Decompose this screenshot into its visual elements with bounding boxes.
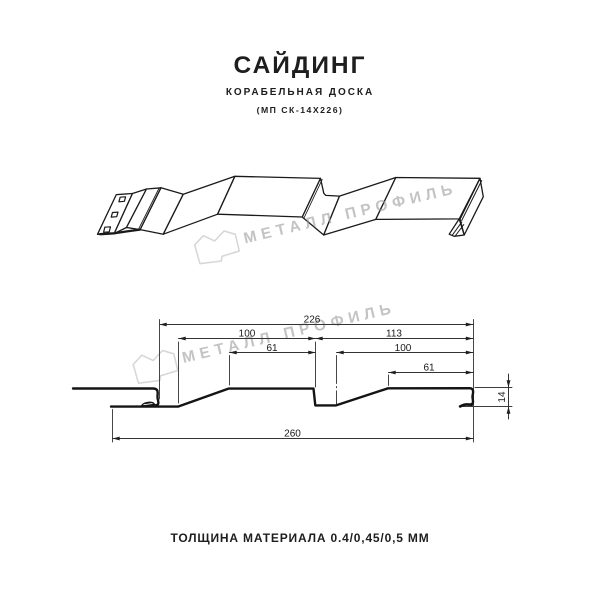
svg-text:113: 113 [386, 329, 402, 340]
svg-text:100: 100 [239, 329, 256, 340]
svg-text:260: 260 [284, 429, 301, 440]
svg-text:61: 61 [266, 343, 278, 354]
svg-text:100: 100 [395, 343, 412, 354]
svg-text:МЕТАЛЛ ПРОФИЛЬ: МЕТАЛЛ ПРОФИЛЬ [180, 300, 397, 367]
svg-text:14: 14 [497, 391, 508, 403]
svg-text:226: 226 [304, 315, 321, 326]
svg-text:61: 61 [423, 363, 435, 374]
